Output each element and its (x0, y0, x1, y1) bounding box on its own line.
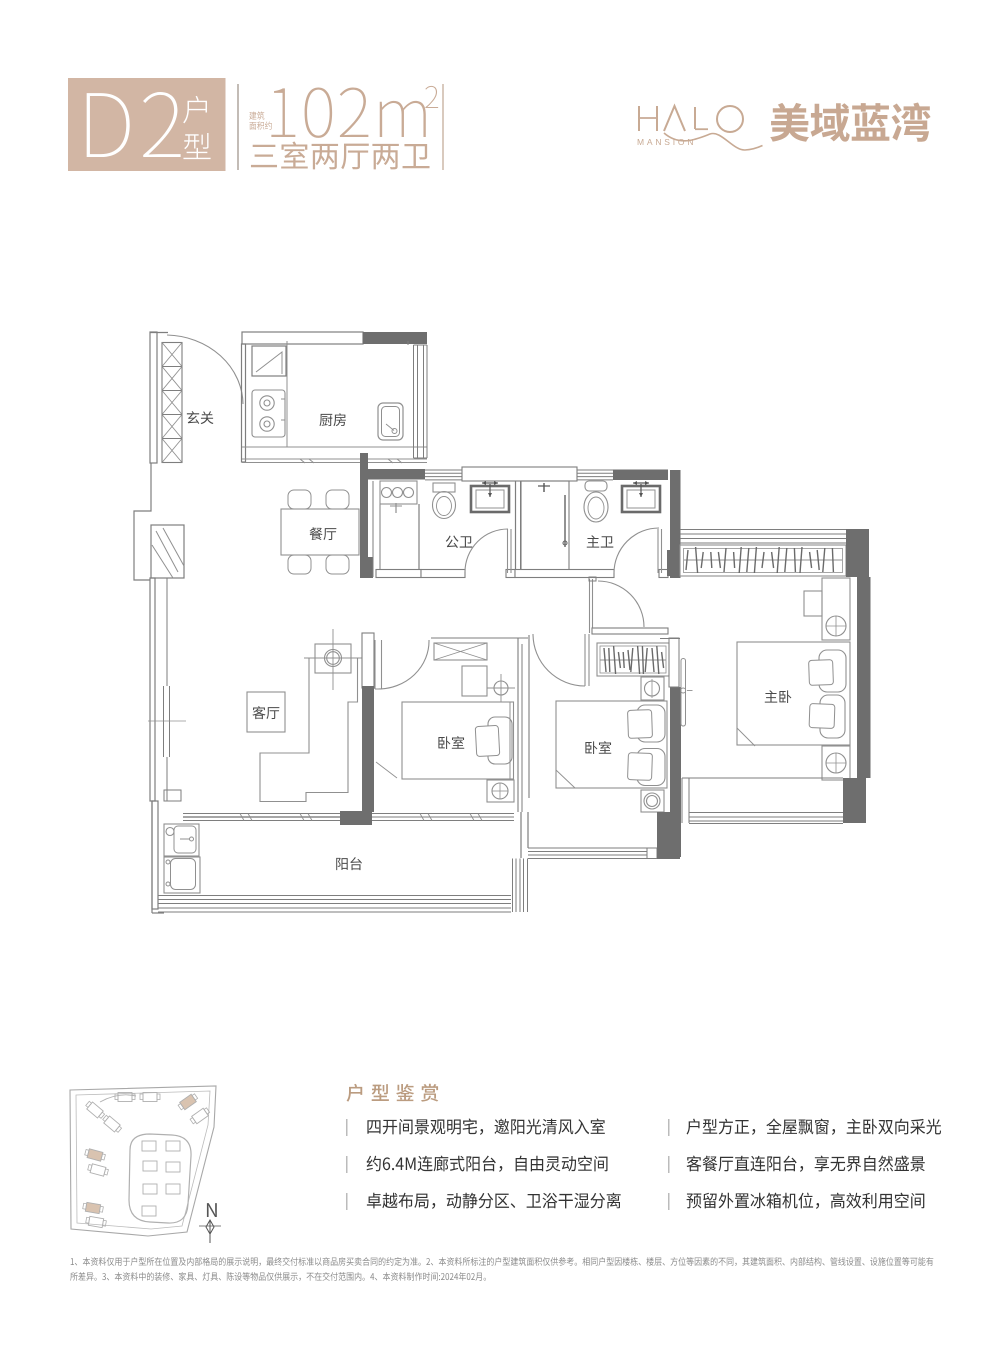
svg-text:MANSION: MANSION (637, 137, 696, 147)
